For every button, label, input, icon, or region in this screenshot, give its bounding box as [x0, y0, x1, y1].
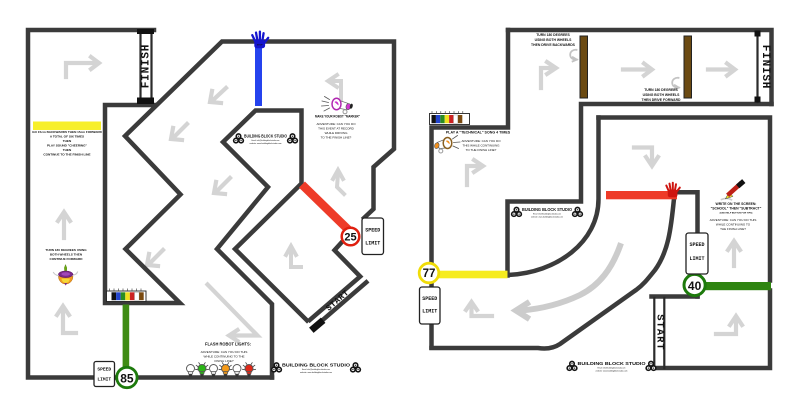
svg-text:THIS EVENT AT RECORD: THIS EVENT AT RECORD	[318, 127, 355, 131]
svg-text:SPEED: SPEED	[422, 296, 437, 302]
svg-text:LIMIT: LIMIT	[689, 256, 704, 262]
svg-text:FINISH: FINISH	[140, 44, 152, 88]
svg-text:LIMIT: LIMIT	[97, 377, 111, 383]
svg-text:"SCHOOL" THEN "SUBTRACT": "SCHOOL" THEN "SUBTRACT"	[711, 207, 762, 211]
svg-text:ADVENTURE: CAN YOU DO THIS: ADVENTURE: CAN YOU DO THIS	[201, 350, 248, 354]
svg-text:85: 85	[120, 371, 134, 385]
svg-text:LIMIT: LIMIT	[365, 241, 380, 247]
svg-text:SPEED: SPEED	[97, 367, 111, 373]
svg-text:SPEED: SPEED	[689, 242, 704, 248]
svg-text:BUILDING BLOCK STUDIO: BUILDING BLOCK STUDIO	[522, 207, 573, 212]
svg-text:FINISH: FINISH	[759, 45, 771, 89]
svg-text:BUILDING BLOCK STUDIO: BUILDING BLOCK STUDIO	[282, 362, 351, 367]
svg-text:CONTINUE FORWARD: CONTINUE FORWARD	[50, 257, 84, 261]
svg-text:website: www.buildingblockstud: website: www.buildingblockstudio.com	[300, 371, 333, 374]
svg-text:PLAY SOUND "CHEERING": PLAY SOUND "CHEERING"	[47, 144, 88, 148]
svg-text:ADVENTURE: CAN YOU DO: ADVENTURE: CAN YOU DO	[461, 139, 501, 143]
svg-text:GO 15cm BACKWARDS THEN 15cm FO: GO 15cm BACKWARDS THEN 15cm FORWARD	[32, 130, 103, 134]
svg-text:BUILDING BLOCK STUDIO: BUILDING BLOCK STUDIO	[578, 361, 647, 366]
svg-text:STOP: STOP	[257, 44, 263, 46]
svg-text:Email: info@buildingblockstudi: Email: info@buildingblockstudio.com	[533, 213, 562, 216]
svg-text:ADVENTURE: CAN YOU DO: ADVENTURE: CAN YOU DO	[316, 122, 356, 126]
svg-text:TURN 180 DEGREES USING: TURN 180 DEGREES USING	[45, 248, 87, 252]
svg-text:FINISH LINE?: FINISH LINE?	[214, 359, 233, 363]
svg-text:TO THE FINISH LINE?: TO THE FINISH LINE?	[466, 148, 497, 152]
svg-text:THEN DRIVE BACKWARDS: THEN DRIVE BACKWARDS	[531, 43, 576, 47]
svg-text:USING BOTH WHEELS: USING BOTH WHEELS	[643, 93, 680, 97]
svg-text:WRITE ON THE SCREEN:: WRITE ON THE SCREEN:	[716, 202, 757, 206]
svg-text:SPEED: SPEED	[365, 228, 380, 234]
svg-text:LIMIT: LIMIT	[422, 309, 437, 315]
svg-text:CONTINUE TO THE FINISH LINE: CONTINUE TO THE FINISH LINE	[43, 153, 90, 157]
svg-text:website: www.buildingblockstud: website: www.buildingblockstudio.com	[250, 142, 283, 145]
svg-text:WHILE DRIVING: WHILE DRIVING	[325, 131, 349, 135]
svg-text:website: www.buildingblockstud: website: www.buildingblockstudio.com	[531, 215, 564, 218]
svg-text:ADVENTURE: CAN YOU DO THIS: ADVENTURE: CAN YOU DO THIS	[710, 218, 757, 222]
svg-text:MAKE YOUR ROBOT "MARKER": MAKE YOUR ROBOT "MARKER"	[315, 115, 360, 119]
svg-text:Email: info@buildingblockstudi: Email: info@buildingblockstudio.com	[252, 139, 281, 142]
svg-text:THEN: THEN	[63, 148, 72, 152]
svg-text:USING BOTH WHEELS: USING BOTH WHEELS	[535, 38, 572, 42]
svg-text:77: 77	[423, 268, 436, 280]
svg-text:BUILDING BLOCK STUDIO: BUILDING BLOCK STUDIO	[244, 133, 287, 138]
svg-text:START: START	[654, 314, 666, 351]
svg-text:TO THE FINISH LINE?: TO THE FINISH LINE?	[321, 136, 352, 140]
svg-text:(USE HELP BUTTON FOR TIPS): (USE HELP BUTTON FOR TIPS)	[720, 213, 753, 215]
svg-text:TURN 180 DEGREES: TURN 180 DEGREES	[536, 33, 570, 37]
svg-text:BOTH WHEELS THEN: BOTH WHEELS THEN	[50, 253, 83, 257]
svg-text:40: 40	[688, 279, 702, 293]
svg-text:FLASH ROBOT LIGHTS:: FLASH ROBOT LIGHTS:	[205, 342, 251, 347]
svg-text:TURN 180 DEGREES: TURN 180 DEGREES	[644, 88, 678, 92]
svg-text:25: 25	[344, 231, 356, 243]
svg-text:WHILE CONTINUING TO THE: WHILE CONTINUING TO THE	[203, 355, 244, 359]
svg-text:Email: info@buildingblockstudi: Email: info@buildingblockstudio.com	[598, 367, 627, 370]
svg-text:THEN DRIVE FORWARD: THEN DRIVE FORWARD	[642, 98, 681, 102]
svg-text:THIS WHILE CONTINUING: THIS WHILE CONTINUING	[462, 144, 500, 148]
svg-text:A TOTAL OF SIX TIMES: A TOTAL OF SIX TIMES	[50, 135, 84, 139]
svg-text:WHILE CONTINUING TO: WHILE CONTINUING TO	[716, 223, 751, 227]
svg-text:THE FINISH LINE?: THE FINISH LINE?	[720, 227, 746, 231]
svg-text:PLAY A "TECHNICAL" SONG 4 TIME: PLAY A "TECHNICAL" SONG 4 TIMES	[446, 131, 511, 135]
svg-text:website: www.buildingblockstud: website: www.buildingblockstudio.com	[596, 369, 629, 372]
svg-text:THEN: THEN	[63, 139, 72, 143]
svg-text:Email: info@buildingblockstudi: Email: info@buildingblockstudio.com	[302, 368, 331, 371]
